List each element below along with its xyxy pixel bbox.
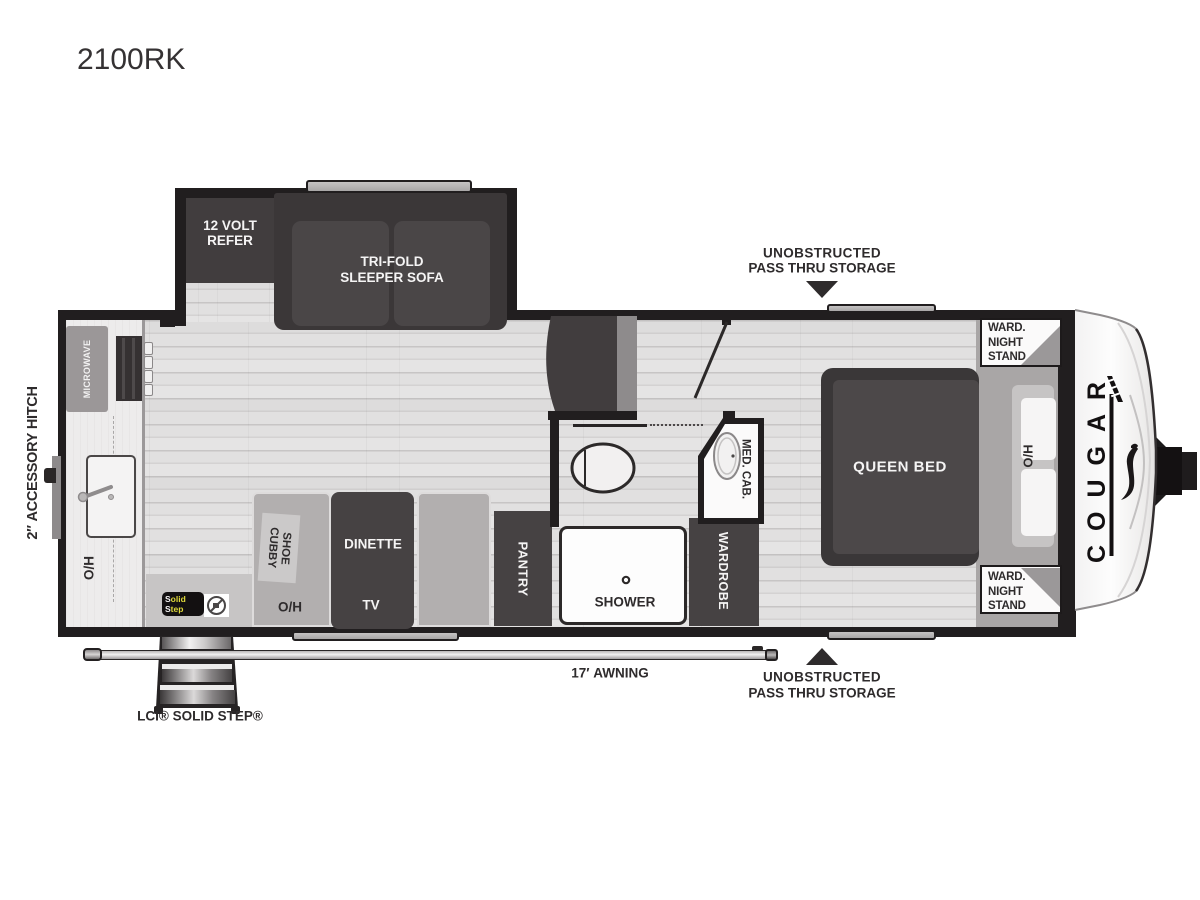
svg-text:COUGAR: COUGAR [1083,368,1111,563]
